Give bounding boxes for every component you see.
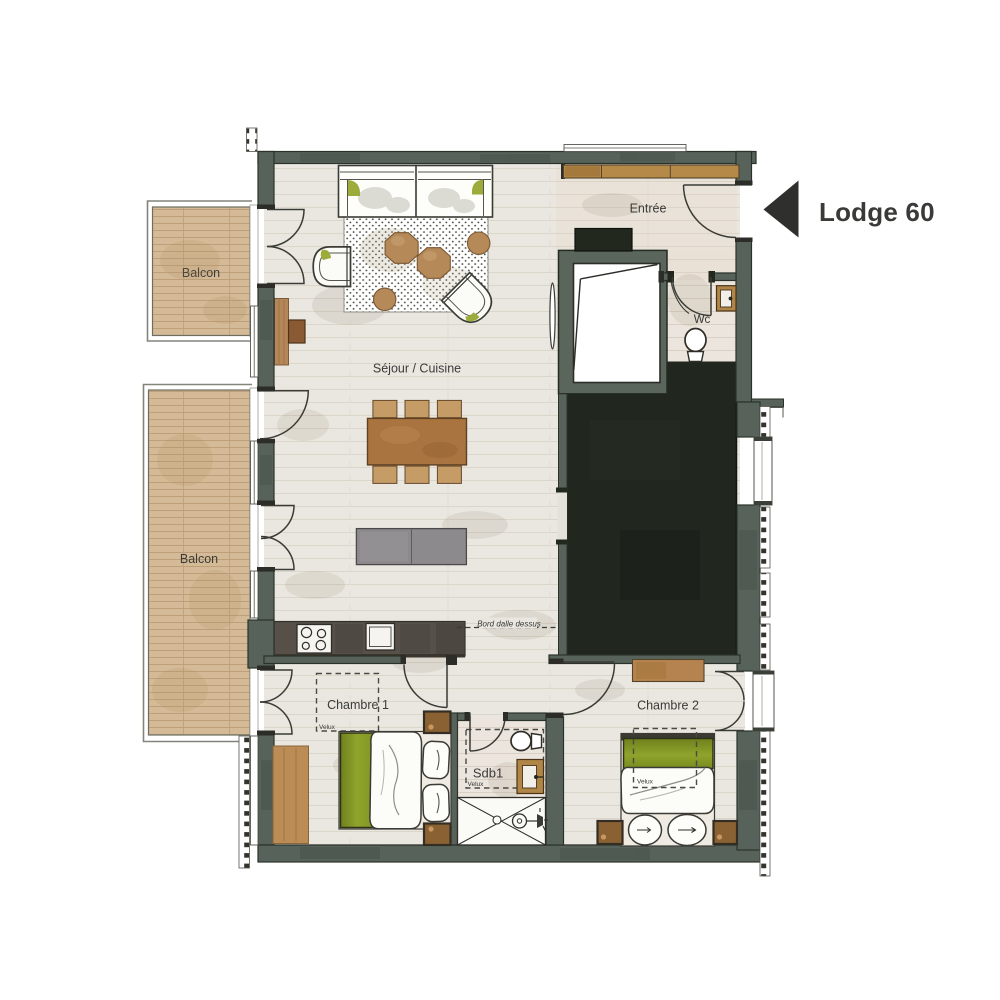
svg-text:Entrée: Entrée [630, 202, 667, 216]
svg-text:Bord dalle dessus: Bord dalle dessus [477, 620, 541, 629]
svg-text:Velux: Velux [468, 781, 485, 788]
svg-text:Séjour / Cuisine: Séjour / Cuisine [373, 362, 461, 376]
svg-text:Chambre 1: Chambre 1 [327, 698, 389, 712]
svg-text:Velux: Velux [319, 724, 336, 731]
svg-text:Sdb1: Sdb1 [473, 766, 503, 781]
svg-text:Velux: Velux [637, 779, 654, 786]
svg-text:Lodge 60: Lodge 60 [819, 197, 935, 227]
svg-text:Chambre 2: Chambre 2 [637, 699, 699, 713]
svg-text:Balcon: Balcon [180, 552, 218, 566]
